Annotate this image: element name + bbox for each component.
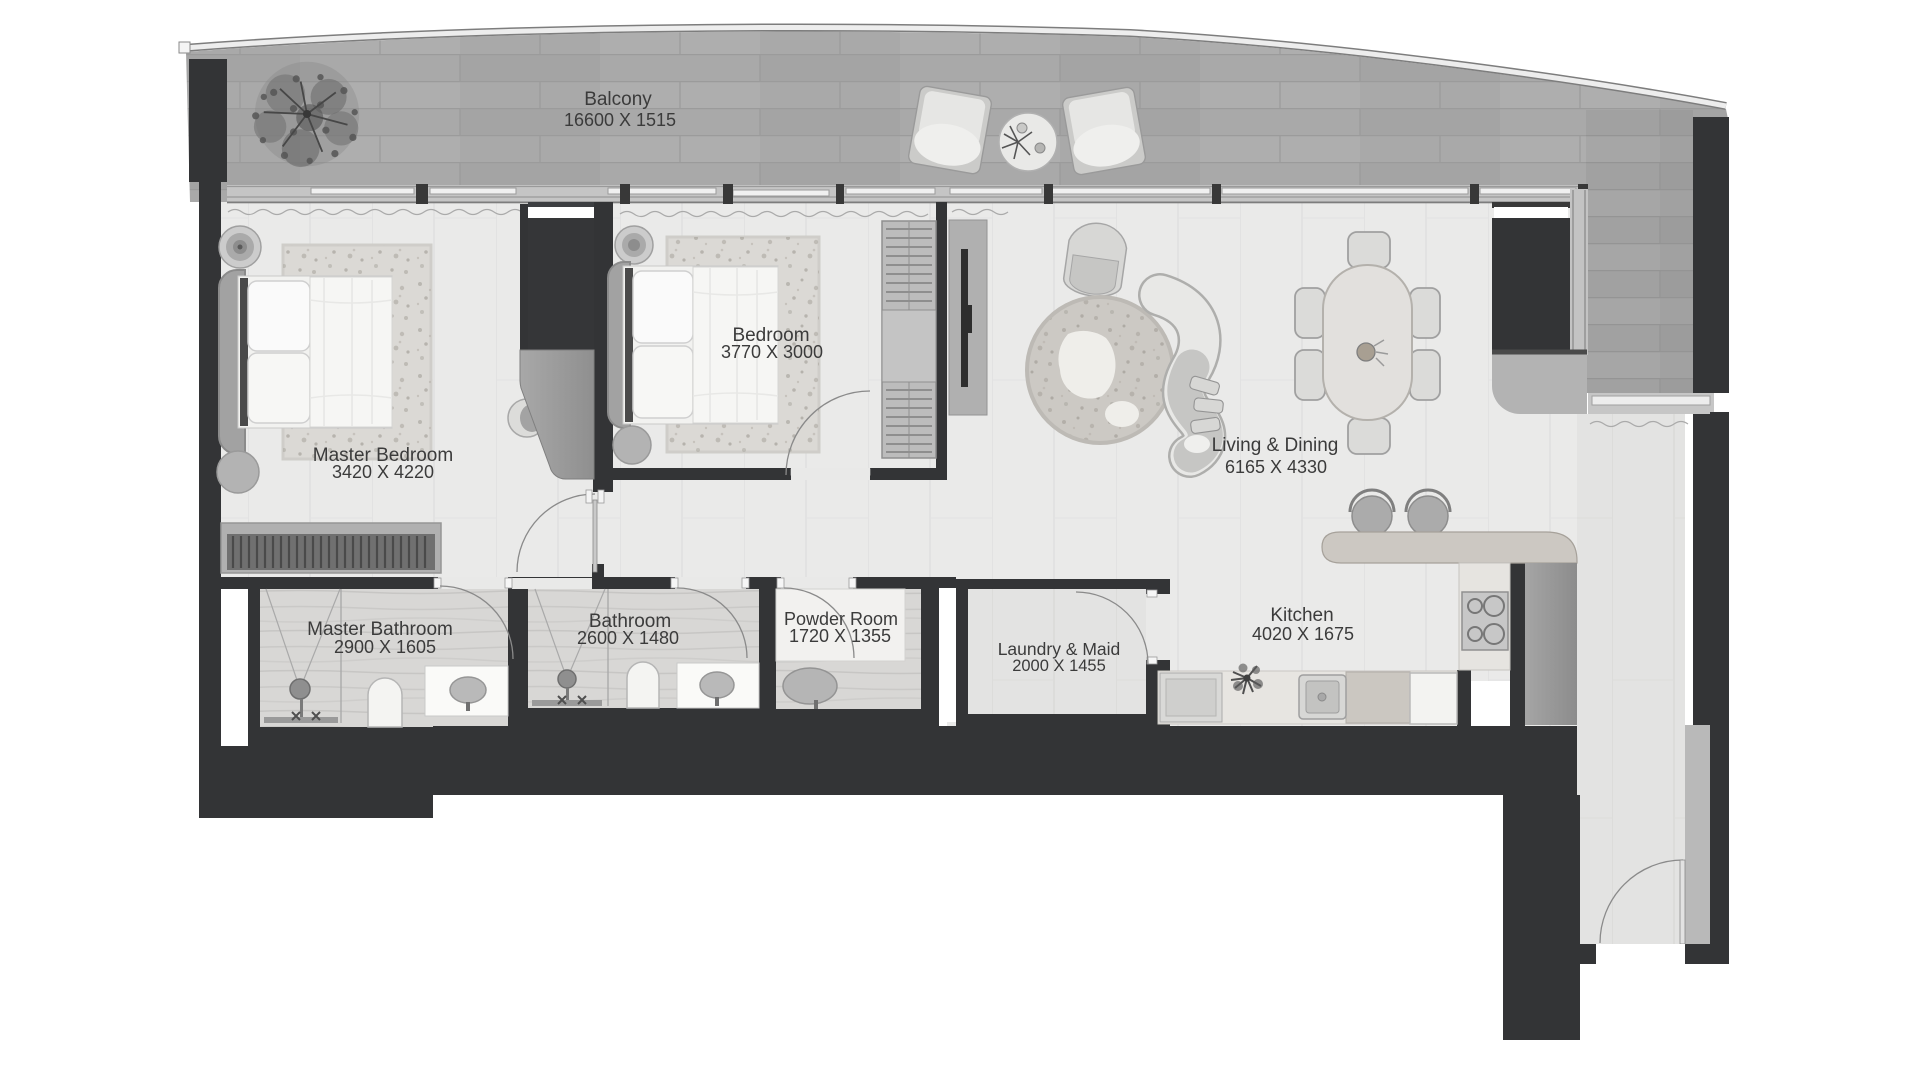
svg-text:2600 X 1480: 2600 X 1480 (577, 628, 679, 648)
svg-text:Laundry & Maid: Laundry & Maid (998, 639, 1121, 659)
svg-text:3770 X 3000: 3770 X 3000 (721, 342, 823, 362)
svg-text:2000 X 1455: 2000 X 1455 (1012, 657, 1106, 675)
svg-text:Living & Dining: Living & Dining (1212, 435, 1339, 456)
svg-text:3420 X 4220: 3420 X 4220 (332, 462, 434, 482)
svg-text:16600 X 1515: 16600 X 1515 (564, 110, 676, 130)
svg-text:Balcony: Balcony (584, 89, 652, 110)
svg-text:4020 X 1675: 4020 X 1675 (1252, 624, 1354, 644)
svg-text:6165 X 4330: 6165 X 4330 (1225, 457, 1327, 477)
svg-text:1720 X 1355: 1720 X 1355 (789, 626, 891, 646)
svg-text:Kitchen: Kitchen (1270, 605, 1333, 626)
svg-text:2900 X 1605: 2900 X 1605 (334, 637, 436, 657)
